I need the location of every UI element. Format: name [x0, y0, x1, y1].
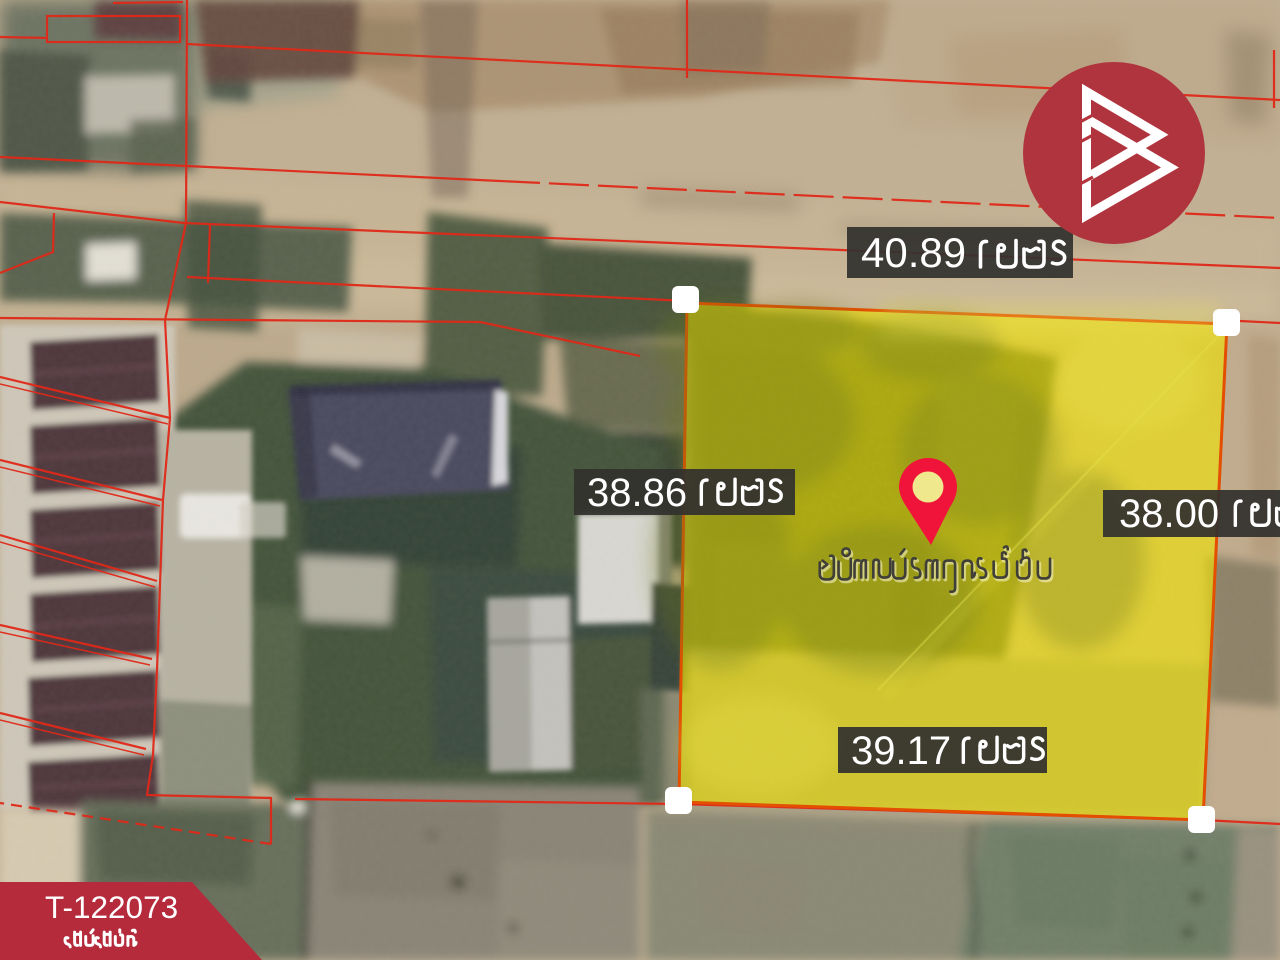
svg-text:40.89: 40.89 [861, 229, 966, 276]
svg-text:38.86: 38.86 [587, 471, 687, 515]
svg-text:T-122073: T-122073 [45, 889, 178, 925]
svg-text:39.17: 39.17 [851, 729, 951, 773]
svg-text:38.00: 38.00 [1119, 492, 1219, 536]
